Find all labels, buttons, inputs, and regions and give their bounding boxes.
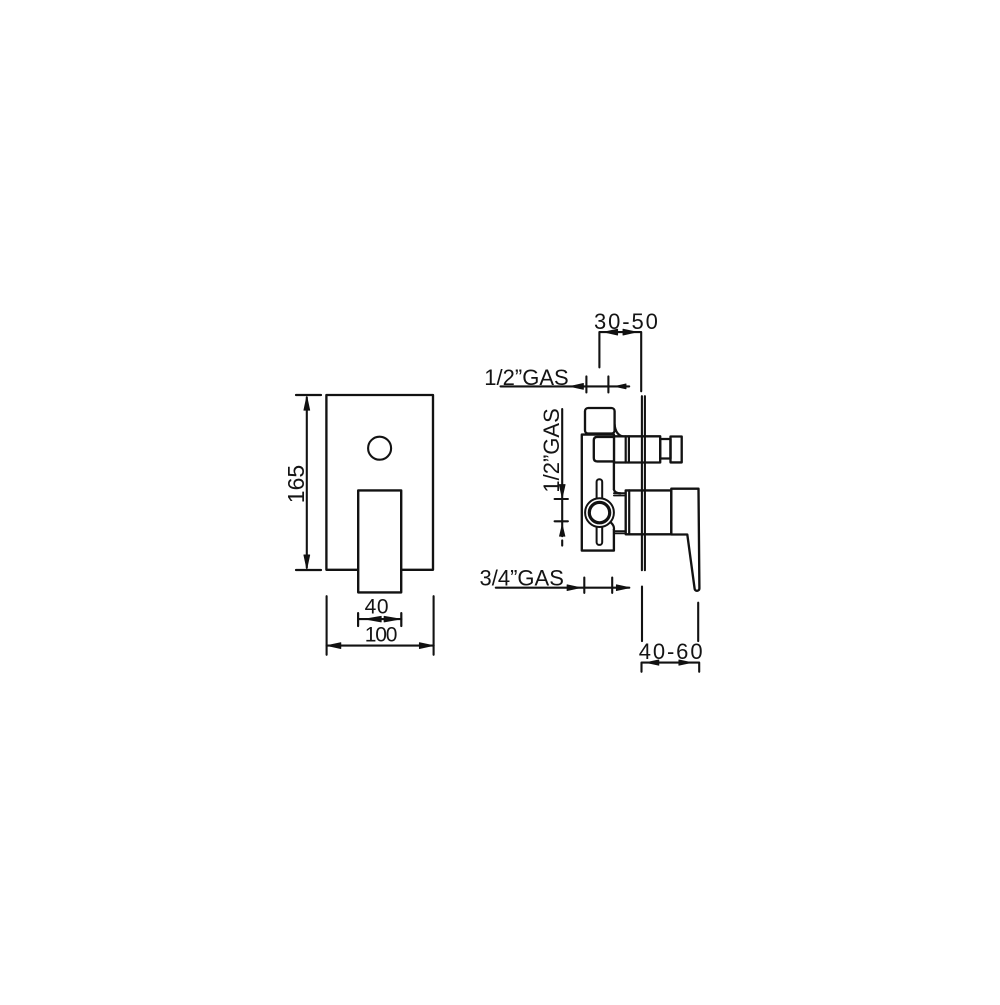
svg-text:1/2”GAS: 1/2”GAS bbox=[539, 408, 564, 492]
svg-text:40: 40 bbox=[365, 595, 390, 618]
svg-text:165: 165 bbox=[283, 465, 309, 503]
svg-text:40-60: 40-60 bbox=[639, 639, 705, 664]
svg-text:100: 100 bbox=[365, 623, 397, 646]
